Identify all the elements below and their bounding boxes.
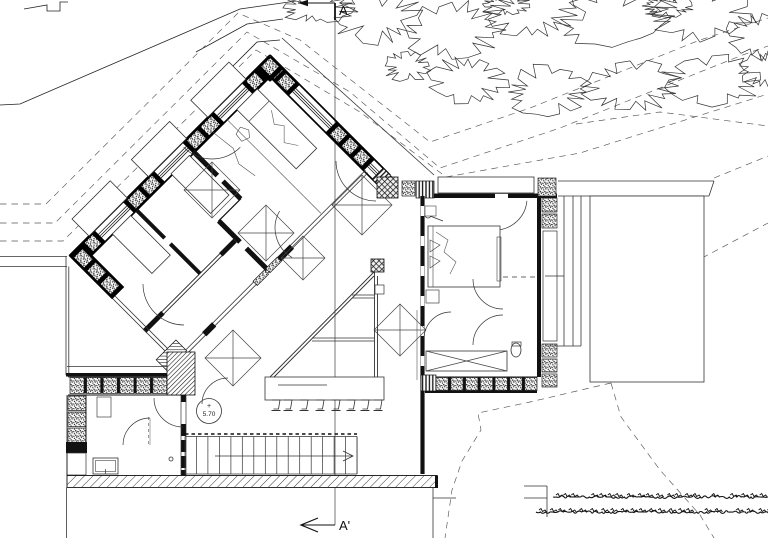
svg-text:5.70: 5.70 <box>203 411 216 418</box>
svg-text:A': A' <box>339 518 350 533</box>
svg-text:+: + <box>207 403 211 410</box>
svg-text:A: A <box>339 3 348 18</box>
